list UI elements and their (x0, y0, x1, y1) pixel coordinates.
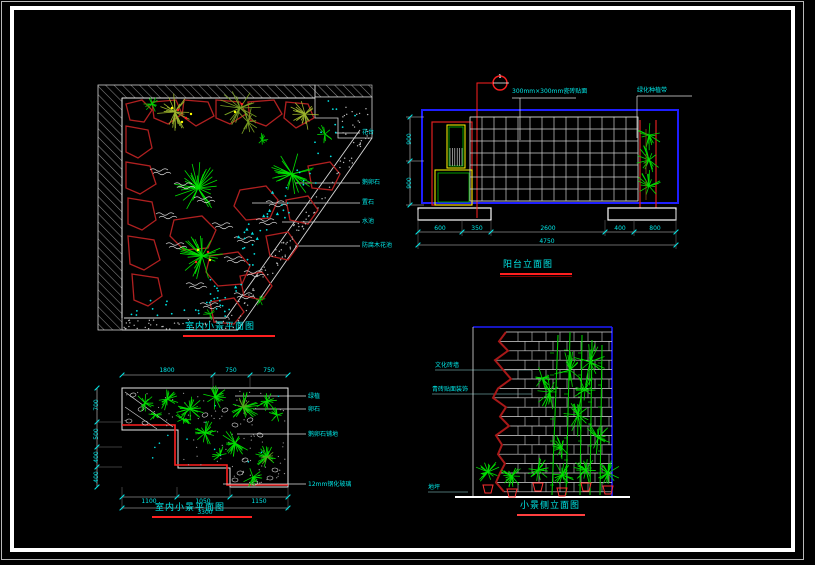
panel-detail-bottom-right: 文化砖墙 青砖贴面装饰 地坪 小景侧立面图 (420, 320, 650, 515)
plan2-callout-3: 12mm钢化玻璃 (308, 481, 351, 488)
elevation-title-underline2 (500, 276, 572, 277)
panel-elevation-top-right: 1 300mm×300mm瓷砖贴面 绿化种植带 600 350 2600 400… (400, 60, 700, 290)
panel-plan-top-left: 花台 鹅卵石 置石 水池 防腐木花池 室内小景平面图 (90, 70, 450, 355)
detail-title: 小景侧立面图 (520, 501, 580, 512)
plan1-title: 室内小景平面图 (185, 322, 255, 333)
plan2-dim-top-1: 750 (225, 368, 236, 374)
plan1-callout-0: 花台 (362, 129, 374, 136)
plan2-callout-1: 卵石 (308, 406, 320, 413)
plan1-callout-4: 防腐木花池 (362, 242, 392, 249)
detail-title-underline (517, 514, 585, 516)
plan2-callout-0: 绿植 (308, 393, 320, 400)
elevation-callout-plant: 绿化种植带 (637, 87, 667, 94)
elev-dim-bottom-2: 2600 (540, 226, 555, 232)
plan2-callout-2: 鹅卵石铺地 (308, 431, 338, 438)
plan2-title-underline (152, 516, 252, 518)
plan1-callout-1: 鹅卵石 (362, 179, 380, 186)
plan2-dim-left-3: 400 (94, 471, 100, 482)
cad-drawing-sheet: 花台 鹅卵石 置石 水池 防腐木花池 室内小景平面图 (0, 0, 815, 565)
elev-dim-left-1: 900 (407, 177, 413, 188)
elev-dim-bottom-1: 350 (471, 226, 482, 232)
detail-callout-0: 文化砖墙 (435, 362, 459, 369)
plan2-dim-left-1: 500 (94, 428, 100, 439)
plan1-callout-2: 置石 (362, 199, 374, 206)
elevation-title-underline (500, 273, 572, 275)
plan-top-left-drawing (90, 70, 450, 355)
plan2-dim-top-0: 1800 (159, 368, 174, 374)
plan2-dim-bottom-2: 1150 (251, 499, 266, 505)
detail-callout-1: 青砖贴面装饰 (432, 386, 468, 393)
elev-dim-total: 4750 (539, 239, 554, 245)
detail-callout-2: 地坪 (428, 484, 440, 491)
detail-drawing (420, 320, 650, 515)
elevation-callout-tile: 300mm×300mm瓷砖贴面 (512, 88, 587, 95)
elevation-title: 阳台立面图 (503, 260, 553, 271)
elev-dim-left-0: 900 (407, 133, 413, 144)
elev-dim-bottom-3: 400 (614, 226, 625, 232)
elev-dim-bottom-0: 600 (434, 226, 445, 232)
plan-bottom-left-drawing (85, 365, 385, 525)
plan2-dim-left-2: 400 (94, 451, 100, 462)
plan2-title: 室内小景平面图 (155, 503, 225, 514)
plan2-dim-left-0: 700 (94, 399, 100, 410)
plan1-callout-3: 水池 (362, 218, 374, 225)
plan2-dim-top-2: 750 (263, 368, 274, 374)
plan1-title-underline (183, 335, 275, 337)
section-bubble-number: 1 (498, 75, 501, 80)
panel-plan-bottom-left: 绿植 卵石 鹅卵石铺地 12mm钢化玻璃 1800 750 750 700 50… (85, 365, 385, 525)
elev-dim-bottom-4: 800 (649, 226, 660, 232)
